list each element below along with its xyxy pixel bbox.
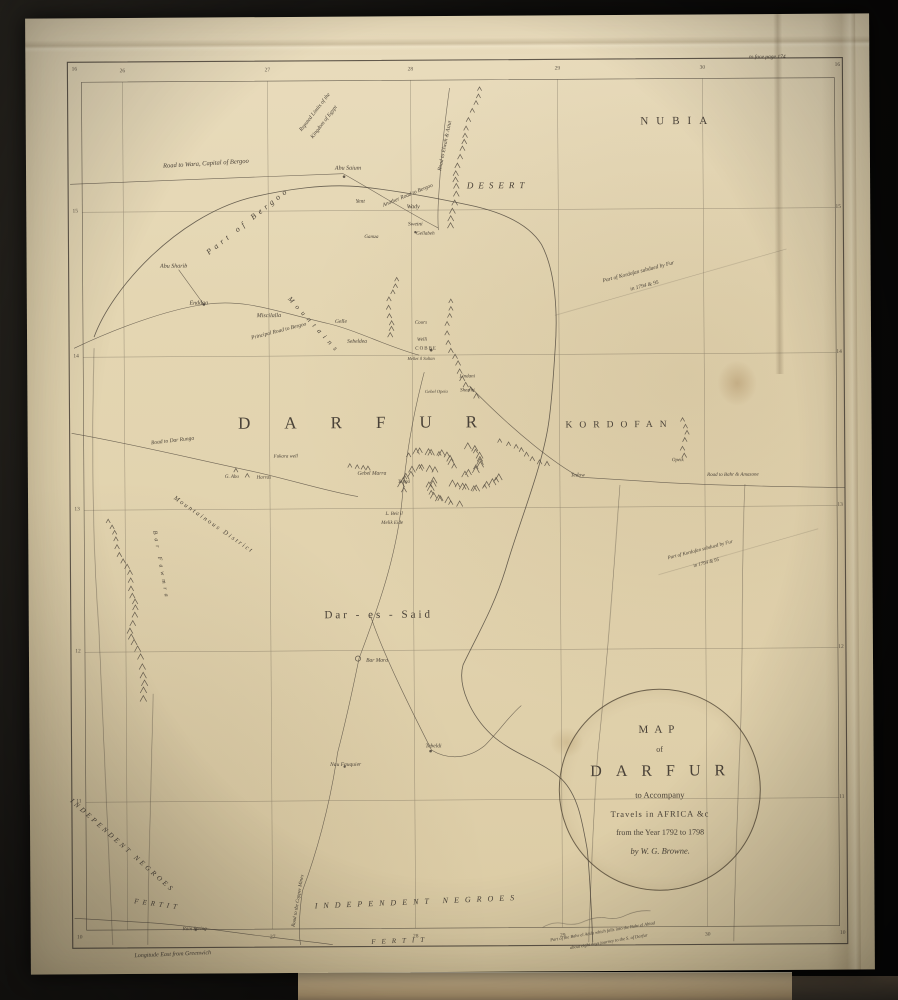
graticule-number: 12: [838, 645, 844, 651]
graticule-number: 28: [413, 934, 419, 940]
map-label: Tenga: [398, 480, 410, 485]
graticule-number: 29: [555, 67, 561, 73]
map-label: Tebeldi: [426, 744, 442, 750]
map-label: Gellabeh: [416, 232, 434, 237]
map-label: DARFUR: [238, 413, 511, 432]
graticule-number: 16: [72, 68, 78, 74]
map-label: Road to Bahr & Amazone: [707, 473, 759, 478]
map-label: Lindani: [459, 374, 475, 379]
map-label: Rain Spring: [183, 927, 207, 932]
map-label: Harras: [257, 476, 271, 481]
photo-of-book-map: NUBIADESERTDARFURKORDOFANDar - es - Said…: [0, 0, 898, 1000]
graticule-number: 12: [75, 650, 81, 656]
map-label: Yent: [356, 200, 365, 206]
graticule-number: 28: [408, 67, 414, 73]
map-label: Cours: [415, 321, 427, 326]
map-label: L. Beit il: [385, 512, 402, 517]
cartouche: MAP of DARFUR to Accompany Travels in AF…: [558, 688, 761, 891]
map-label: to face page 174: [749, 55, 786, 61]
map-label: Dar - es - Said: [324, 610, 433, 622]
book-page-edge-dark: [792, 976, 898, 1000]
map-label: Nau Fauquier: [330, 763, 361, 769]
graticule-number: 10: [840, 931, 846, 937]
graticule-number: 29: [560, 934, 566, 940]
graticule-number: 11: [839, 795, 844, 801]
map-label: Melik Eide: [381, 521, 403, 526]
cartouche-years: from the Year 1792 to 1798: [616, 827, 704, 837]
map-label: Gebel Opeia: [425, 390, 448, 395]
town-dots: [190, 175, 436, 931]
map-label: Hellet il Sultan: [408, 357, 435, 362]
map-label: COBBE: [415, 347, 437, 352]
darfur-boundary: [93, 184, 593, 945]
map-label: Gamza: [364, 235, 378, 240]
map-label: NUBIA: [640, 116, 715, 127]
map-label: Wady: [407, 204, 420, 210]
cartouche-map-word: MAP: [638, 724, 680, 736]
map-label: Sebeldea: [347, 340, 367, 346]
cartouche-author: by W. G. Browne.: [630, 846, 689, 856]
map-label: Enddaa: [189, 300, 208, 306]
cartouche-of: of: [656, 745, 663, 754]
map-sheet: NUBIADESERTDARFURKORDOFANDar - es - Said…: [25, 13, 875, 974]
graticule-number: 15: [73, 210, 79, 216]
map-label: Welli: [417, 338, 427, 343]
map-label: G. Abu: [225, 475, 239, 480]
town-ring: [355, 656, 360, 661]
graticule-number: 30: [700, 66, 706, 72]
map-label: Abu Saium: [335, 166, 361, 172]
map-label: Sweini: [408, 222, 423, 228]
cartouche-subtitle1: to Accompany: [635, 790, 684, 800]
map-label: Gelle: [335, 320, 347, 326]
cartouche-title: DARFUR: [590, 762, 739, 781]
graticule-number: 13: [837, 503, 843, 509]
graticule-number: 14: [836, 350, 842, 356]
graticule-number: 14: [73, 355, 79, 361]
map-label: Bar Mara: [366, 659, 388, 665]
map-label: Sherini: [460, 388, 474, 393]
graticule-number: 27: [270, 935, 276, 941]
graticule-number: 10: [77, 936, 83, 942]
graticule-number: 15: [835, 205, 841, 211]
graticule-number: 13: [74, 508, 80, 514]
map-label: Gebel Marra: [357, 472, 386, 478]
graticule-number: 27: [265, 68, 271, 74]
map-label: Fukara well: [274, 454, 298, 459]
map-label: KORDOFAN: [566, 421, 674, 431]
cartouche-subtitle2: Travels in AFRICA &c: [611, 808, 710, 819]
map-label: Opeik: [672, 458, 684, 463]
map-label: Tedow: [571, 473, 585, 479]
book-page-edge: [298, 972, 792, 1000]
graticule-number: 11: [76, 800, 81, 806]
graticule-number: 30: [705, 933, 711, 939]
graticule-number: 16: [835, 63, 841, 69]
graticule-number: 26: [120, 69, 126, 75]
map-label: DESERT: [467, 181, 530, 190]
map-label: Abu Sharib: [160, 264, 187, 270]
map-label: Miscilalla: [257, 313, 281, 319]
